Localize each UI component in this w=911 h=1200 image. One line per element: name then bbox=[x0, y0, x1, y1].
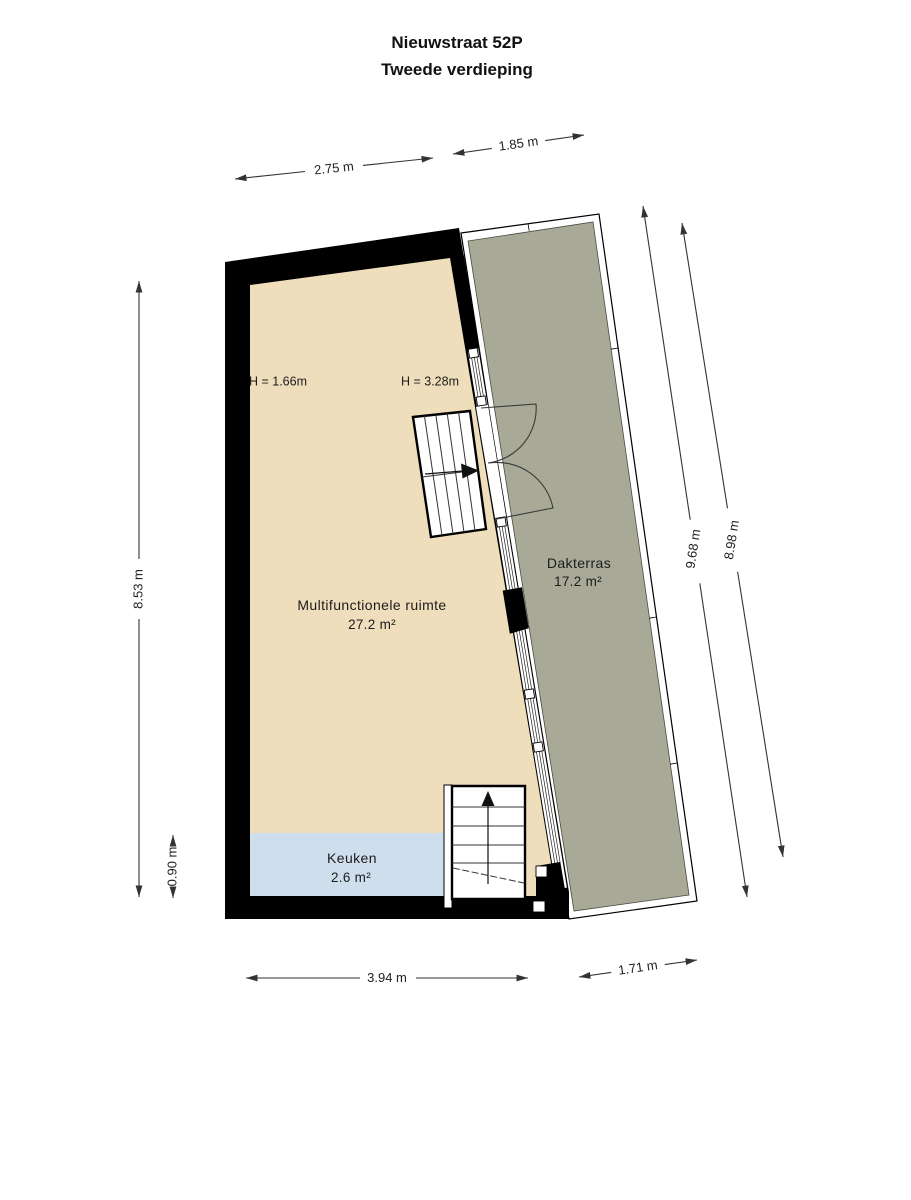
room-multifunctional-area: 27.2 m² bbox=[348, 617, 396, 632]
height-label-right: H = 3.28m bbox=[401, 374, 459, 388]
room-kitchen-name: Keuken bbox=[327, 850, 377, 866]
floorplan-drawing: Nieuwstraat 52P Tweede verdieping bbox=[0, 0, 911, 1200]
room-multifunctional-name: Multifunctionele ruimte bbox=[297, 597, 446, 613]
lower-staircase bbox=[444, 785, 525, 908]
height-label-left: H = 1.66m bbox=[249, 374, 307, 388]
dimension-label: 8.53 m bbox=[130, 569, 145, 609]
room-terrace-name: Dakterras bbox=[547, 555, 611, 571]
room-kitchen-area: 2.6 m² bbox=[331, 870, 371, 885]
page-subtitle: Tweede verdieping bbox=[381, 60, 533, 79]
room-terrace-area: 17.2 m² bbox=[554, 574, 602, 589]
dimension-label: 0.90 m bbox=[164, 847, 179, 887]
floorplan-page: Nieuwstraat 52P Tweede verdieping bbox=[0, 0, 911, 1200]
page-title: Nieuwstraat 52P bbox=[391, 33, 522, 52]
dimension-label: 3.94 m bbox=[367, 970, 407, 985]
